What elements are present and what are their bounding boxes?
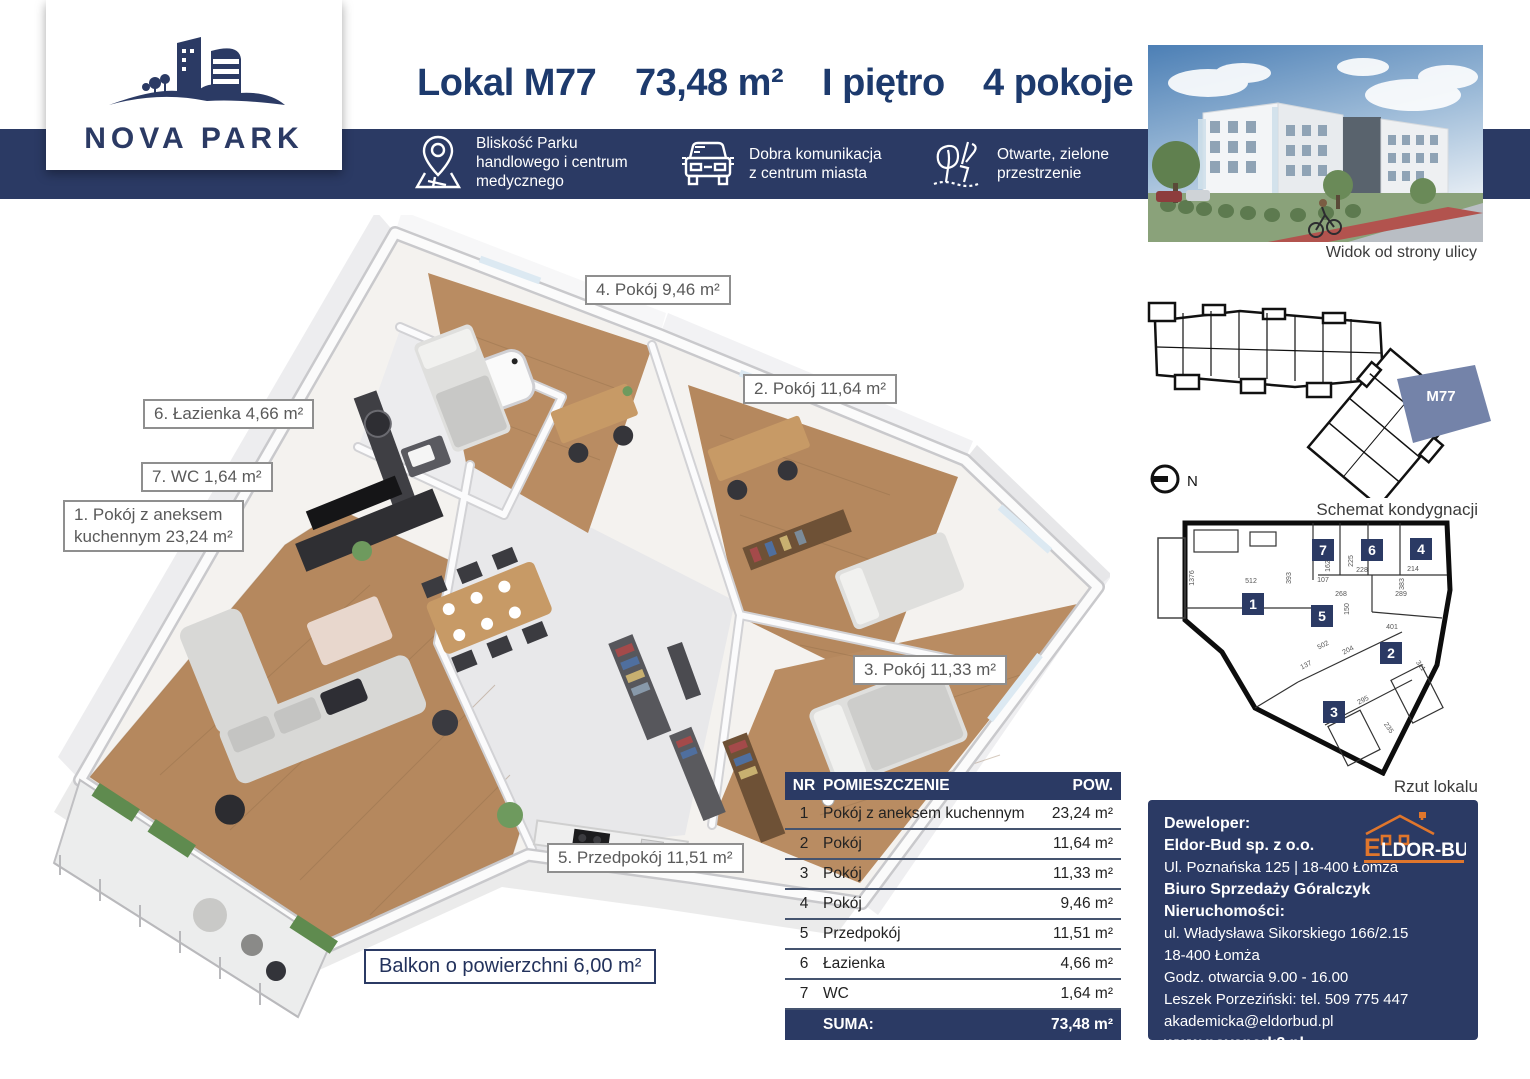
car-icon	[680, 140, 736, 188]
street-view-photo	[1148, 45, 1483, 242]
marker-6: 6	[1368, 542, 1376, 558]
row-area: 11,51 m²	[1027, 925, 1121, 943]
row-area: 4,66 m²	[1027, 955, 1121, 973]
nova-park-logo-text: NOVA PARK	[84, 122, 303, 156]
dim: 225	[1348, 555, 1355, 567]
table-row: 5 Przedpokój 11,51 m²	[785, 920, 1121, 950]
schemat-caption: Schemat kondygnacji	[1180, 500, 1478, 520]
row-nr: 3	[785, 865, 823, 883]
sum-label: SUMA:	[823, 1016, 1027, 1034]
row-area: 23,24 m²	[1027, 805, 1121, 823]
rooms-table: NR POMIESZCZENIE POW. 1 Pokój z aneksem …	[785, 772, 1121, 1040]
nova-park-logo-icon	[89, 25, 299, 120]
row-name: Łazienka	[823, 955, 1027, 973]
dim: 393	[1286, 572, 1293, 584]
table-row: 3 Pokój 11,33 m²	[785, 860, 1121, 890]
table-row: 2 Pokój 11,64 m²	[785, 830, 1121, 860]
dim: 150	[1344, 603, 1351, 615]
dim: 268	[1335, 591, 1347, 598]
row-name: WC	[823, 985, 1027, 1003]
marker-5: 5	[1318, 608, 1326, 624]
row-area: 1,64 m²	[1027, 985, 1121, 1003]
feature-park-line1: Bliskość Parku	[476, 134, 628, 153]
rooms-table-header: NR POMIESZCZENIE POW.	[785, 772, 1121, 800]
marker-2: 2	[1387, 645, 1395, 661]
label-hall: 5. Przedpokój 11,51 m²	[547, 843, 744, 873]
row-area: 9,46 m²	[1027, 895, 1121, 913]
dim: 214	[1407, 566, 1419, 573]
label-room3: 3. Pokój 11,33 m²	[853, 655, 1007, 685]
table-row: 7 WC 1,64 m²	[785, 980, 1121, 1010]
unit-title: Lokal M77	[417, 62, 596, 105]
feature-green-line1: Otwarte, zielone	[997, 145, 1109, 164]
nova-park-logo: NOVA PARK	[46, 0, 342, 170]
feature-transport: Dobra komunikacja z centrum miasta	[680, 140, 882, 188]
eldor-bud-logo: E LDOR-BUD	[1362, 812, 1466, 868]
row-nr: 7	[785, 985, 823, 1003]
row-nr: 4	[785, 895, 823, 913]
row-name: Pokój	[823, 865, 1027, 883]
table-row: 6 Łazienka 4,66 m²	[785, 950, 1121, 980]
dev-line-email[interactable]: akademicka@eldorbud.pl	[1164, 1011, 1462, 1033]
dev-line-office-city: 18-400 Łomża	[1164, 945, 1462, 967]
label-balcony: Balkon o powierzchni 6,00 m²	[364, 949, 656, 984]
dev-line-office-street: ul. Władysława Sikorskiego 166/2.15	[1164, 923, 1462, 945]
compass-icon: N	[1152, 466, 1198, 492]
row-nr: 5	[785, 925, 823, 943]
dim: 107	[1317, 577, 1329, 584]
row-name: Pokój	[823, 835, 1027, 853]
unit-rooms: 4 pokoje	[983, 62, 1133, 105]
marker-7: 7	[1319, 542, 1327, 558]
label-room2: 2. Pokój 11,64 m²	[743, 374, 897, 404]
dim: 512	[1245, 578, 1257, 585]
label-room1-line1: 1. Pokój z aneksem	[74, 504, 233, 526]
rzut-caption: Rzut lokalu	[1180, 777, 1478, 797]
table-row: 4 Pokój 9,46 m²	[785, 890, 1121, 920]
header-room: POMIESZCZENIE	[823, 777, 1027, 795]
header-area: POW.	[1027, 777, 1121, 795]
row-nr: 1	[785, 805, 823, 823]
developer-panel: E LDOR-BUD Deweloper: Eldor-Bud sp. z o.…	[1148, 800, 1478, 1040]
header-nr: NR	[785, 777, 823, 795]
feature-green: Otwarte, zielone przestrzenie	[928, 138, 1109, 190]
sum-value: 73,48 m²	[1027, 1016, 1121, 1034]
feature-transport-line1: Dobra komunikacja	[749, 145, 882, 164]
row-name: Pokój	[823, 895, 1027, 913]
feature-transport-line2: z centrum miasta	[749, 164, 882, 183]
row-name: Przedpokój	[823, 925, 1027, 943]
dim: 383	[1399, 578, 1406, 590]
marker-3: 3	[1330, 704, 1338, 720]
dev-line-office: Biuro Sprzedaży Góralczyk Nieruchomości:	[1164, 879, 1462, 923]
label-room1-line2: kuchennym 23,24 m²	[74, 526, 233, 548]
photo-caption: Widok od strony ulicy	[1180, 244, 1477, 262]
feature-park: Bliskość Parku handlowego i centrum medy…	[413, 133, 628, 191]
compass-n-label: N	[1187, 473, 1198, 490]
table-row: 1 Pokój z aneksem kuchennym 23,24 m²	[785, 800, 1121, 830]
unit-area: 73,48 m²	[635, 62, 783, 105]
marker-4: 4	[1417, 541, 1425, 557]
eldor-logo-e: E	[1364, 834, 1381, 862]
unit-floor: I piętro	[822, 62, 945, 105]
dim: 289	[1395, 591, 1407, 598]
row-nr: 2	[785, 835, 823, 853]
dim: 228	[1356, 567, 1368, 574]
marker-1: 1	[1249, 596, 1257, 612]
feature-green-line2: przestrzenie	[997, 164, 1109, 183]
dim: 162	[1325, 560, 1332, 572]
dim: 1376	[1189, 570, 1196, 586]
table-sum-row: SUMA: 73,48 m²	[785, 1010, 1121, 1040]
label-room4: 4. Pokój 9,46 m²	[585, 275, 731, 305]
plant-icon	[928, 138, 984, 190]
eldor-logo-rest: LDOR-BUD	[1381, 840, 1466, 861]
dev-line-website[interactable]: www.novapark2.pl	[1164, 1033, 1462, 1055]
feature-park-line2: handlowego i centrum	[476, 153, 628, 172]
map-pin-icon	[413, 133, 463, 191]
feature-park-line3: medycznego	[476, 172, 628, 191]
flyer-page: Lokal M77 73,48 m² I piętro 4 pokoje	[0, 0, 1530, 1079]
label-bathroom: 6. Łazienka 4,66 m²	[143, 399, 314, 429]
unit-plan-2d: 1 2 3 4 5 6 7 1376 512 393 107 162 225 2…	[1150, 520, 1522, 776]
dim: 401	[1386, 624, 1398, 631]
row-area: 11,33 m²	[1027, 865, 1121, 883]
dev-line-phone[interactable]: Leszek Porzeziński: tel. 509 775 447	[1164, 989, 1462, 1011]
row-name: Pokój z aneksem kuchennym	[823, 805, 1027, 823]
label-room1: 1. Pokój z aneksem kuchennym 23,24 m²	[63, 500, 244, 552]
label-wc: 7. WC 1,64 m²	[141, 462, 273, 492]
dev-line-hours: Godz. otwarcia 9.00 - 16.00	[1164, 967, 1462, 989]
unit-m77-label: M77	[1426, 388, 1455, 405]
row-nr: 6	[785, 955, 823, 973]
row-area: 11,64 m²	[1027, 835, 1121, 853]
floor-schematic: M77 N	[1145, 283, 1525, 498]
